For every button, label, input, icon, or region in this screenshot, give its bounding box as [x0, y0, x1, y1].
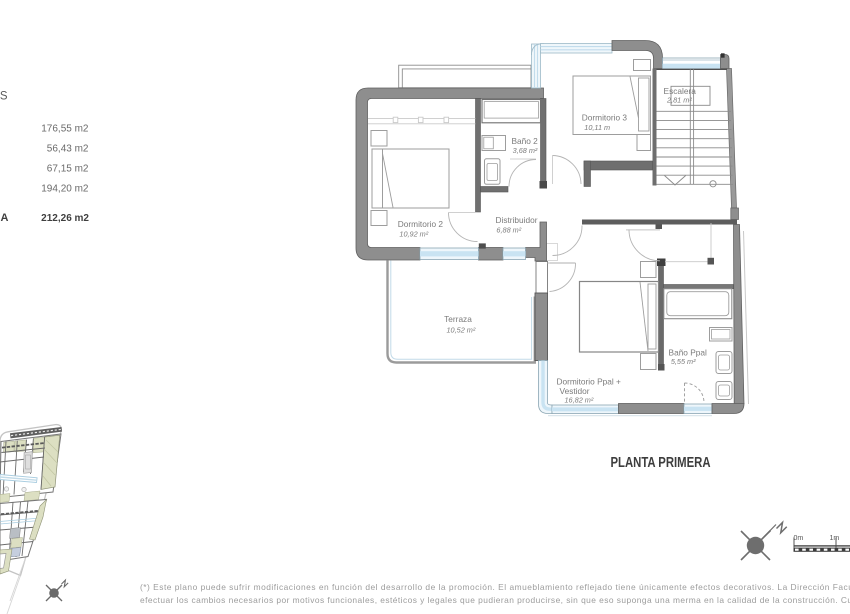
svg-text:56,43 m2: 56,43 m2	[47, 143, 89, 154]
svg-text:S: S	[0, 91, 8, 103]
svg-text:6,88 m²: 6,88 m²	[496, 225, 521, 234]
svg-text:A: A	[1, 212, 9, 224]
svg-text:0m: 0m	[794, 535, 804, 542]
svg-text:Escalera: Escalera	[664, 86, 697, 96]
svg-text:16,82 m²: 16,82 m²	[565, 395, 594, 404]
svg-text:Dormitorio 3: Dormitorio 3	[582, 113, 628, 123]
svg-text:1m: 1m	[830, 535, 840, 542]
svg-text:67,15 m2: 67,15 m2	[47, 163, 89, 174]
svg-text:(*) Este plano puede sufrir mo: (*) Este plano puede sufrir modificacion…	[140, 582, 850, 592]
svg-text:3,68 m²: 3,68 m²	[513, 146, 538, 155]
svg-text:PLANTA PRIMERA: PLANTA PRIMERA	[611, 454, 711, 471]
svg-text:5,55 m²: 5,55 m²	[671, 357, 696, 366]
svg-text:176,55 m2: 176,55 m2	[41, 123, 89, 134]
svg-text:Dormitorio 2: Dormitorio 2	[398, 219, 444, 229]
svg-text:194,20 m2: 194,20 m2	[41, 183, 89, 194]
svg-text:efectuar los cambios necesario: efectuar los cambios necesarios por moti…	[140, 595, 850, 605]
svg-text:10,92 m²: 10,92 m²	[399, 229, 428, 238]
svg-text:Terraza: Terraza	[444, 314, 472, 324]
svg-text:2,81 m²: 2,81 m²	[666, 96, 692, 105]
svg-text:Distribuidor: Distribuidor	[496, 215, 538, 225]
svg-text:10,11 m: 10,11 m	[584, 123, 610, 132]
svg-text:10,52 m²: 10,52 m²	[447, 325, 476, 334]
svg-text:Baño Ppal: Baño Ppal	[669, 347, 707, 357]
svg-text:Baño 2: Baño 2	[511, 136, 538, 146]
svg-text:212,26 m2: 212,26 m2	[41, 213, 89, 224]
